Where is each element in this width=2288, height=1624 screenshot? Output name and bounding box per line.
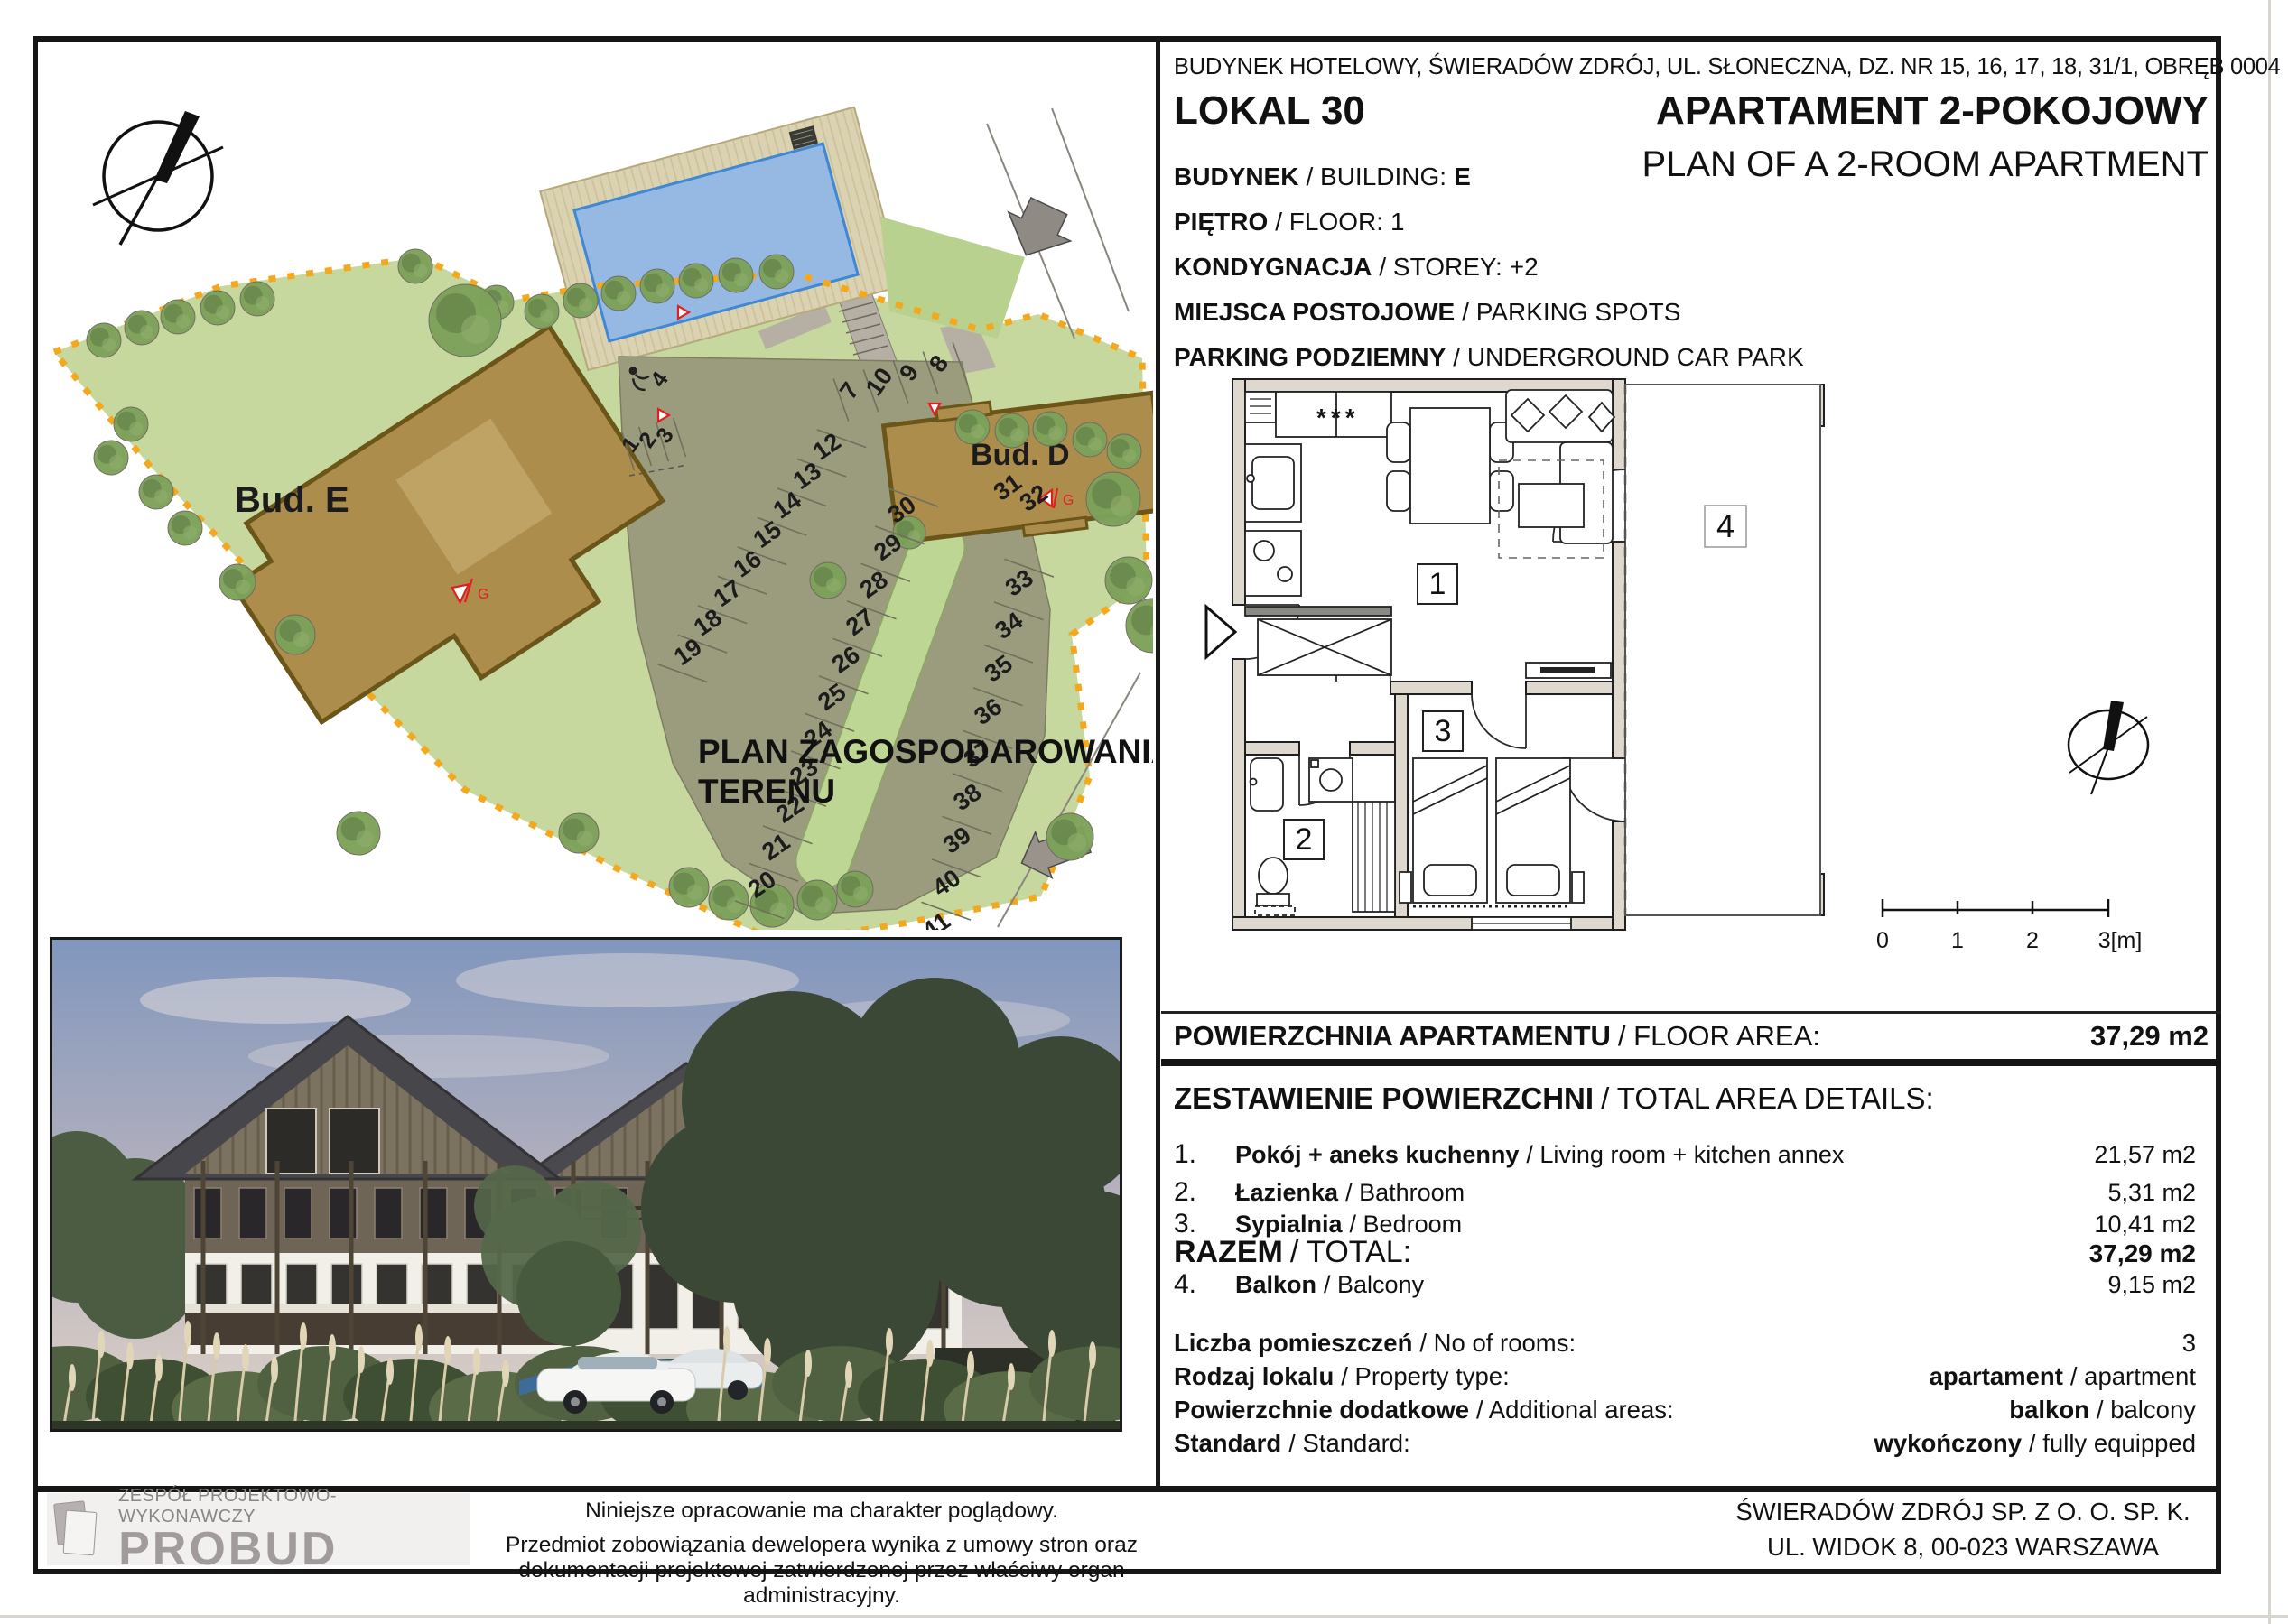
window: [375, 1188, 402, 1239]
floor-area-row: POWIERZCHNIA APARTAMENTU/ FLOOR AREA: 37…: [1161, 1011, 2221, 1066]
apartment-title-pl: APARTAMENT 2-POKOJOWY: [1656, 88, 2209, 134]
area-row-1: 1. Pokój + aneks kuchenny/ Living room +…: [1174, 1139, 2196, 1170]
company-name: ŚWIERADÓW ZDRÓJ SP. Z O. O. SP. K.: [1728, 1495, 2198, 1530]
property-row-type: Rodzaj lokalu/ Property type: apartament…: [1174, 1362, 2196, 1391]
disclaimer-line2: Przedmiot zobowiązania dewelopera wynika…: [479, 1533, 1165, 1609]
svg-text:1: 1: [1951, 928, 1964, 953]
scan-edge-right: [2268, 0, 2271, 1624]
area-row-2: 2. Łazienka/ Bathroom 5,31 m2: [1174, 1177, 2196, 1208]
svg-text:0: 0: [1876, 928, 1889, 953]
detail-underground: PARKING PODZIEMNY/ UNDERGROUND CAR PARK: [1174, 343, 1804, 372]
window: [1472, 917, 1571, 930]
building-photo: [50, 937, 1122, 1432]
shower: [1353, 802, 1395, 912]
nightstand: [1572, 872, 1584, 903]
beds: [1400, 758, 1584, 906]
kitchen: [1245, 392, 1391, 675]
detail-building: BUDYNEK/ BUILDING:E: [1174, 162, 1471, 191]
area-details-heading: ZESTAWIENIE POWIERZCHNI/ TOTAL AREA DETA…: [1174, 1081, 1934, 1116]
logo-tagline: ZESPÓŁ PROJEKTOWO-WYKONAWCZY: [118, 1486, 470, 1527]
tv-cabinet: [1526, 663, 1611, 678]
room-3-label: 3: [1435, 714, 1452, 748]
probud-papers-icon: [47, 1497, 109, 1562]
site-plan-title-line1: PLAN ZAGOSPODAROWANIA: [698, 733, 1153, 770]
floor-plan: ***: [1201, 370, 2221, 1002]
stove: [1245, 531, 1301, 596]
detail-storey: KONDYGNACJA/ STOREY:+2: [1174, 253, 1539, 282]
scale-bar: [1883, 899, 2108, 917]
floor-area-value: 37,29 m2: [2090, 1020, 2209, 1053]
sheet: Bud. E Bud. D G G: [0, 0, 2288, 1624]
room-4-label: 4: [1716, 507, 1735, 544]
disclaimer-line1: Niniejsze opracowanie ma charakter poglą…: [479, 1499, 1165, 1524]
logo-name: PROBUD: [118, 1527, 470, 1572]
kitchen-sink: [1252, 457, 1294, 509]
room-2-label: 2: [1296, 822, 1313, 857]
window: [284, 1188, 312, 1239]
probud-logo: ZESPÓŁ PROJEKTOWO-WYKONAWCZY PROBUD: [47, 1493, 470, 1565]
plan-compass-icon: [2069, 701, 2148, 794]
entry-arrow-icon: [1206, 607, 1235, 657]
scan-edge-bottom: [0, 1615, 2288, 1618]
pillow: [1424, 865, 1476, 896]
company-street: UL. WIDOK 8, 00-023 WARSZAWA: [1728, 1530, 2198, 1565]
column-divider: [1156, 42, 1160, 1486]
nightstand: [1400, 872, 1411, 903]
site-plan: Bud. E Bud. D G G: [41, 41, 1153, 930]
svg-text:G: G: [478, 587, 488, 602]
kitchen-vent-symbol: ***: [1316, 404, 1360, 432]
detail-parking-spots: MIEJSCA POSTOJOWE/ PARKING SPOTS: [1174, 298, 1680, 327]
pillow: [1507, 865, 1559, 896]
apartment-title-en: PLAN OF A 2-ROOM APARTMENT: [1642, 144, 2209, 185]
dining-set: [1387, 408, 1513, 524]
unit-number: LOKAL 30: [1174, 88, 1365, 134]
building-e-label: Bud. E: [235, 480, 349, 520]
scale-labels: 0 1 2 3[m]: [1876, 928, 2142, 953]
property-row-rooms: Liczba pomieszczeń/ No of rooms: 3: [1174, 1329, 2196, 1358]
property-row-additional: Powierzchnie dodatkowe/ Additional areas…: [1174, 1396, 2196, 1424]
company-address: ŚWIERADÓW ZDRÓJ SP. Z O. O. SP. K. UL. W…: [1728, 1495, 2198, 1564]
project-address: BUDYNEK HOTELOWY, ŚWIERADÓW ZDRÓJ, UL. S…: [1174, 54, 2212, 80]
property-row-standard: Standard/ Standard: wykończony/ fully eq…: [1174, 1429, 2196, 1458]
balcony: [1625, 385, 1820, 915]
svg-text:2: 2: [2026, 928, 2039, 953]
road-edge: [1052, 108, 1129, 311]
area-total-row: RAZEM/ TOTAL: 37,29 m2: [1174, 1235, 2196, 1270]
coffee-table: [1519, 484, 1584, 527]
svg-text:G: G: [1063, 493, 1074, 508]
window: [239, 1188, 266, 1239]
toilet: [1259, 858, 1288, 894]
window: [194, 1188, 221, 1239]
svg-text:3[m]: 3[m]: [2098, 928, 2143, 953]
north-compass-icon: [93, 111, 223, 245]
detail-floor: PIĘTRO/ FLOOR:1: [1174, 208, 1405, 237]
disclaimer: Niniejsze opracowanie ma charakter poglą…: [479, 1499, 1165, 1609]
area-row-4: 4. Balkon/ Balcony 9,15 m2: [1174, 1269, 2196, 1300]
site-plan-title-line2: TERENU: [698, 773, 835, 810]
room-1-label: 1: [1429, 567, 1446, 601]
